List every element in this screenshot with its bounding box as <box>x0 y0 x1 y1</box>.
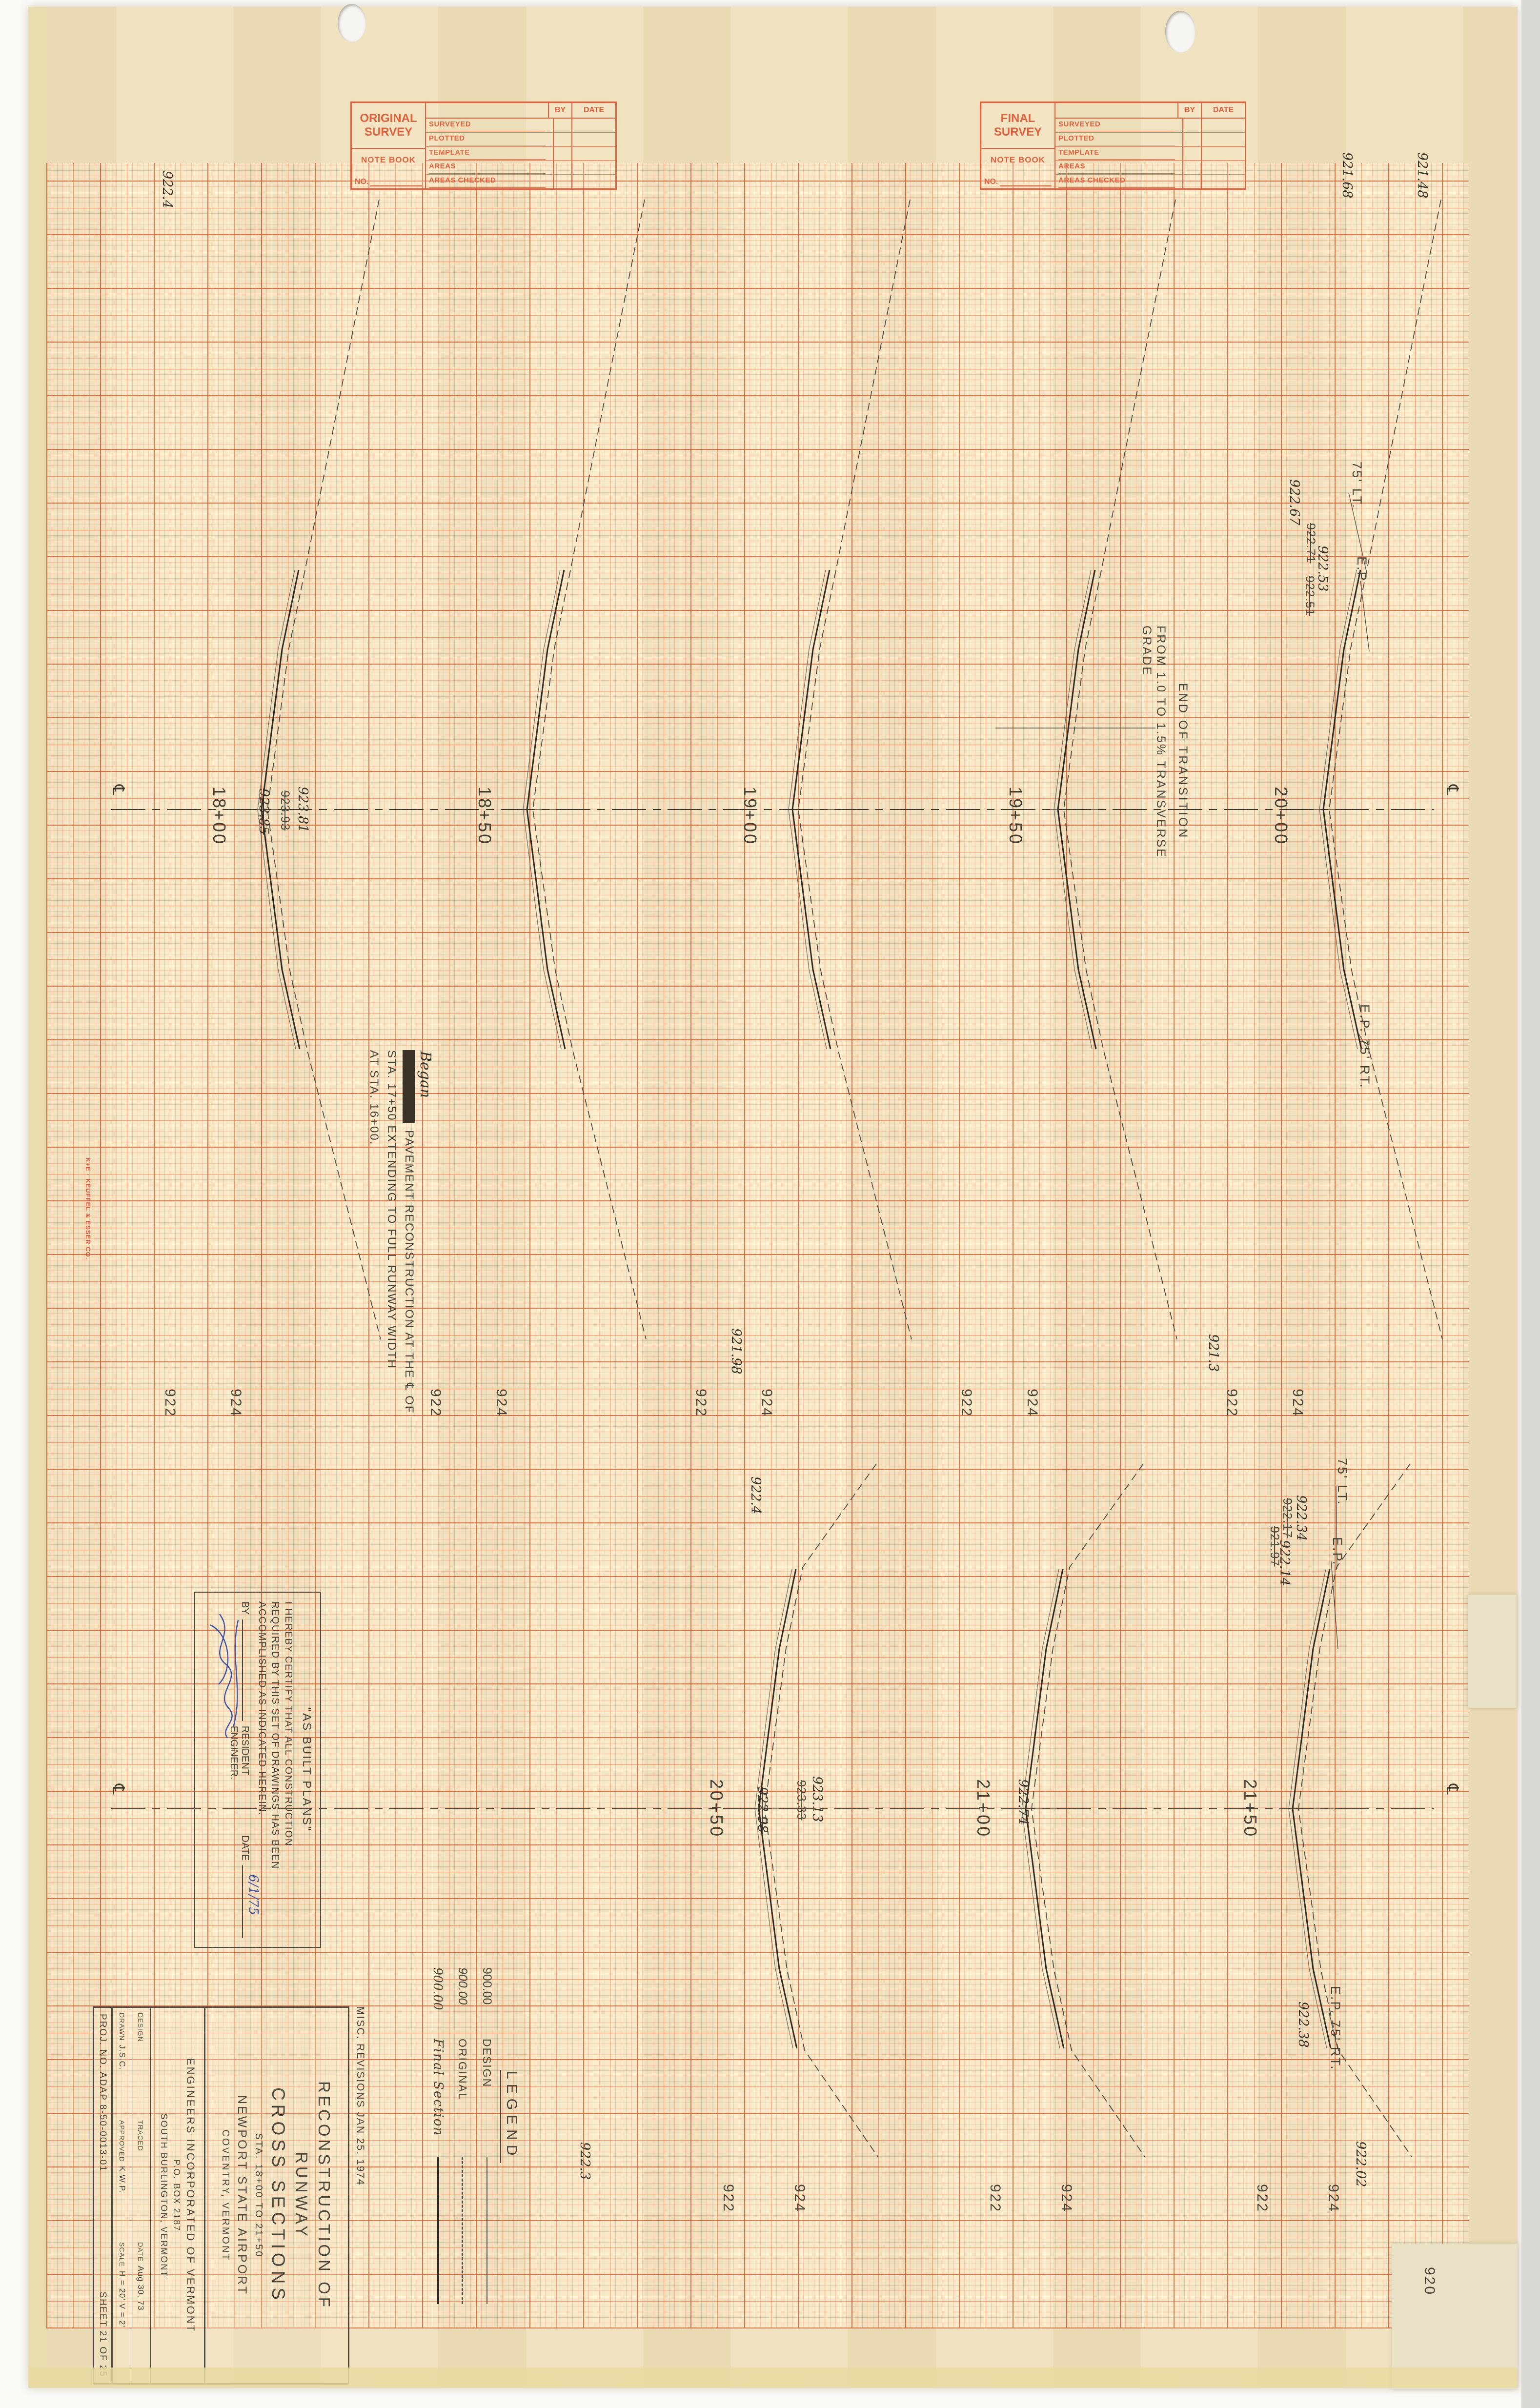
section-line <box>1032 1464 1145 2157</box>
stamp-title: FINAL SURVEY <box>981 103 1054 149</box>
design-line-sample <box>486 2157 487 2304</box>
elevation-annotation: 923.93 <box>278 790 292 830</box>
elevation-grid-label: 924 <box>1058 2184 1074 2213</box>
stamp-by-header: BY <box>548 103 572 118</box>
centerline-symbol: ℄ <box>108 1784 128 1795</box>
handwritten-date: 6/1/75 <box>246 1874 261 1915</box>
legend-entry-original: 900.00 ORIGINAL <box>451 1967 474 2304</box>
elevation-annotation: 922.4 <box>748 1477 763 1514</box>
title-block: MISC. REVISIONS JAN 25, 1974 RECONSTRUCT… <box>93 2006 366 2385</box>
elevation-grid-label: 924 <box>758 1389 775 1417</box>
elevation-annotation: 922.3 <box>577 2142 592 2180</box>
elevation-annotation: 922.14 <box>1277 1540 1292 1586</box>
section-line <box>798 200 912 1339</box>
scanned-drawing-sheet: ORIGINAL SURVEY NOTE BOOK NO. BY DATE SU… <box>0 0 1540 2408</box>
station-label: 19+50 <box>1005 787 1026 846</box>
elevation-annotation: 922.34 <box>1294 1495 1309 1541</box>
stamp-row-label: AREAS CHECKED <box>426 175 553 188</box>
ke-brand-text: K+E · KEUFFEL & ESSER CO. <box>72 1157 92 1304</box>
station-label: 21+00 <box>973 1779 993 1838</box>
centerline-symbol: ℄ <box>1442 785 1462 795</box>
scale-value: H = 20' V = 2' <box>117 2271 127 2327</box>
as-built-body1: I HEREBY CERTIFY THAT ALL CONSTRUCTION <box>282 1601 295 1938</box>
airport-name: NEWPORT STATE AIRPORT <box>235 2008 249 2383</box>
transition-note: END OF TRANSITION FROM 1.0 TO 1.5% TRANS… <box>1141 626 1190 899</box>
elevation-annotation: 922.51 <box>1302 576 1317 616</box>
firm-po-box: P.O. BOX 2187 <box>171 2008 182 2383</box>
binder-hole <box>338 4 366 42</box>
elevation-grid-label: 922 <box>1254 2184 1270 2213</box>
elevation-grid-label: 922 <box>427 1389 444 1417</box>
firm-name: ENGINEERS INCORPORATED OF VERMONT <box>184 2008 197 2383</box>
elevation-annotation: 923.13 <box>810 1776 825 1822</box>
elevation-grid-label: 924 <box>1325 2184 1341 2213</box>
scan-edge <box>1521 0 1540 2408</box>
stamp-date-header: DATE <box>572 103 615 118</box>
elevation-annotation: 922.02 <box>1353 2141 1368 2187</box>
elevation-grid-label: 922 <box>958 1389 974 1417</box>
sheet-subtitle: CROSS SECTIONS <box>268 2008 289 2383</box>
stamp-row-label: TEMPLATE <box>426 147 553 161</box>
paper-edge <box>28 2368 1518 2388</box>
stamp-notebook-label: NOTE BOOK <box>981 149 1054 171</box>
elevation-annotation: 921.3 <box>1206 1334 1221 1372</box>
elevation-grid-label: 924 <box>1289 1389 1306 1417</box>
design-label: DESIGN <box>137 2013 144 2042</box>
paper-edge <box>28 7 46 2388</box>
paper-patch <box>1468 1595 1517 1708</box>
stamp-row-label: SURVEYED <box>426 119 553 132</box>
elevation-grid-label: 922 <box>162 1389 178 1417</box>
stamp-row-label: PLOTTED <box>426 133 553 146</box>
as-built-by-label: BY <box>239 1601 250 1615</box>
final-section-line-sample <box>437 2157 439 2304</box>
station-label: 18+00 <box>209 787 229 846</box>
pavement-symbol-bar <box>403 1050 416 1123</box>
as-built-date-label: DATE <box>239 1835 250 1861</box>
station-label: 20+00 <box>1271 787 1291 846</box>
reconstruction-note-line2: STA. 17+50 EXTENDING TO FULL RUNWAY WIDT… <box>385 1050 398 1543</box>
stamp-date-header: DATE <box>1202 103 1245 118</box>
stamp-title: ORIGINAL SURVEY <box>352 103 425 149</box>
legend-entry-design: 900.00 DESIGN <box>476 1967 498 2304</box>
original-survey-stamp: ORIGINAL SURVEY NOTE BOOK NO. BY DATE SU… <box>350 101 617 190</box>
scale-label: SCALE <box>118 2242 126 2267</box>
section-line <box>1298 1464 1412 2157</box>
stamp-row-label: AREAS <box>1055 161 1182 174</box>
stamp-no-label: NO. <box>984 178 998 186</box>
elevation-grid-label: 924 <box>227 1389 244 1417</box>
elevation-annotation: 922.38 <box>1296 2002 1311 2047</box>
offset-label: E.P. 75' RT. <box>1357 1004 1372 1089</box>
stamp-no-label: NO. <box>355 178 368 186</box>
transition-note-line2: FROM 1.0 TO 1.5% TRANSVERSE GRADE <box>1139 626 1168 899</box>
offset-label: E.P. <box>1354 556 1369 586</box>
section-line <box>1329 200 1442 1339</box>
reconstruction-note-line1: PAVEMENT RECONSTRUCTION AT THE ℄ OF <box>402 1130 416 1414</box>
original-line-sample <box>462 2157 464 2304</box>
stamp-row-label: PLOTTED <box>1055 133 1182 146</box>
stamp-row-label: AREAS <box>426 161 553 174</box>
elevation-annotation: 922.98 <box>755 1787 770 1833</box>
elevation-annotation: 922.67 <box>1287 479 1302 525</box>
airport-city: COVENTRY, VERMONT <box>220 2008 231 2383</box>
stamp-notebook-label: NOTE BOOK <box>352 149 425 171</box>
binder-hole <box>1165 11 1196 53</box>
resident-engineer-label: RESIDENT ENGINEER. <box>228 1726 250 1831</box>
sheet-title-line2: RUNWAY <box>293 2008 311 2383</box>
elevation-annotation: 922.53 <box>1315 546 1330 591</box>
station-label: 20+50 <box>706 1779 727 1838</box>
elevation-annotation: 922.74 <box>1015 1779 1031 1825</box>
station-label: 18+50 <box>474 787 495 846</box>
elevation-grid-label: 922 <box>987 2184 1003 2213</box>
offset-label: 75' LT. <box>1335 1458 1350 1506</box>
approved-label: APPROVED <box>118 2120 126 2162</box>
elevation-grid-label: 920 <box>1421 2267 1438 2296</box>
signature-line <box>242 1619 250 1721</box>
stamp-row-label: AREAS CHECKED <box>1055 175 1182 188</box>
approved-value: K.W.P. <box>117 2166 127 2193</box>
drawn-label: DRAWN <box>118 2013 126 2041</box>
stamp-row-label: TEMPLATE <box>1055 147 1182 161</box>
drawn-value: J.S.C. <box>117 2044 127 2070</box>
project-number: PROJ. NO. ADAP 8-50-0013-01 <box>98 2014 108 2172</box>
elevation-annotation: 921.98 <box>729 1328 744 1374</box>
as-built-body2: REQUIRED BY THIS SET OF DRAWINGS HAS BEE… <box>268 1601 282 1938</box>
stamp-by-header: BY <box>1177 103 1202 118</box>
elevation-annotation: 922.17 <box>1280 1498 1294 1538</box>
elevation-annotation: 921.68 <box>1339 152 1355 198</box>
offset-label: E.P. 75' RT. <box>1328 1986 1343 2071</box>
date-label: DATE <box>137 2242 144 2262</box>
paper-brand: K+E · KEUFFEL & ESSER CO. <box>72 1157 92 1304</box>
as-built-title: "AS BUILT PLANS" <box>300 1601 313 1938</box>
elevation-grid-label: 924 <box>493 1389 509 1417</box>
elevation-grid-label: 924 <box>1024 1389 1040 1417</box>
section-line <box>533 200 646 1339</box>
reconstruction-note-line3: AT STA. 16+00. <box>367 1050 381 1543</box>
date-value: Aug 30, 73 <box>136 2266 145 2310</box>
centerline-symbol: ℄ <box>1442 1784 1462 1795</box>
elevation-grid-label: 922 <box>1223 1389 1240 1417</box>
traced-label: TRACED <box>137 2120 144 2151</box>
station-range: STA. 18+00 TO 21+50 <box>253 2008 264 2383</box>
legend-title: LEGEND <box>500 2070 520 2163</box>
legend-entry-final: 900.00 Final Section <box>427 1967 449 2304</box>
legend: LEGEND 900.00 DESIGN 900.00 ORIGINAL 900… <box>412 1967 520 2304</box>
elevation-annotation: 923.85 <box>256 789 271 834</box>
date-line: 6/1/75 <box>242 1865 250 1938</box>
station-label: 21+50 <box>1240 1779 1260 1838</box>
elevation-grid-label: 922 <box>720 2184 736 2213</box>
elevation-grid-label: 922 <box>692 1389 709 1417</box>
station-label: 19+00 <box>740 787 760 846</box>
section-line <box>1360 581 1369 651</box>
elevation-grid-label: 924 <box>791 2184 808 2213</box>
began-handwriting: Began <box>417 1051 434 1098</box>
centerline-symbol: ℄ <box>108 785 128 795</box>
firm-city: SOUTH BURLINGTON, VERMONT <box>159 2008 169 2383</box>
revisions-note: MISC. REVISIONS JAN 25, 1974 <box>349 2006 366 2385</box>
sheet-title-line1: RECONSTRUCTION OF <box>315 2008 334 2383</box>
offset-label: E.P. <box>1330 1537 1345 1566</box>
stamp-row-label: SURVEYED <box>1055 119 1182 132</box>
as-built-certification-box: "AS BUILT PLANS" I HEREBY CERTIFY THAT A… <box>194 1592 321 1948</box>
offset-label: 75' LT. <box>1349 462 1364 509</box>
elevation-annotation: 923.81 <box>295 787 310 832</box>
elevation-annotation: 923.33 <box>794 1780 808 1820</box>
transition-note-line1: END OF TRANSITION <box>1175 626 1190 899</box>
final-survey-stamp: FINAL SURVEY NOTE BOOK NO. BY DATE SURVE… <box>980 101 1246 190</box>
reconstruction-note: Began PAVEMENT RECONSTRUCTION AT THE ℄ O… <box>352 1050 433 1543</box>
elevation-annotation: 922.4 <box>160 171 175 208</box>
elevation-annotation: 921.48 <box>1415 152 1430 198</box>
sheet-number: SHEET 21 OF 25 <box>98 2292 108 2378</box>
